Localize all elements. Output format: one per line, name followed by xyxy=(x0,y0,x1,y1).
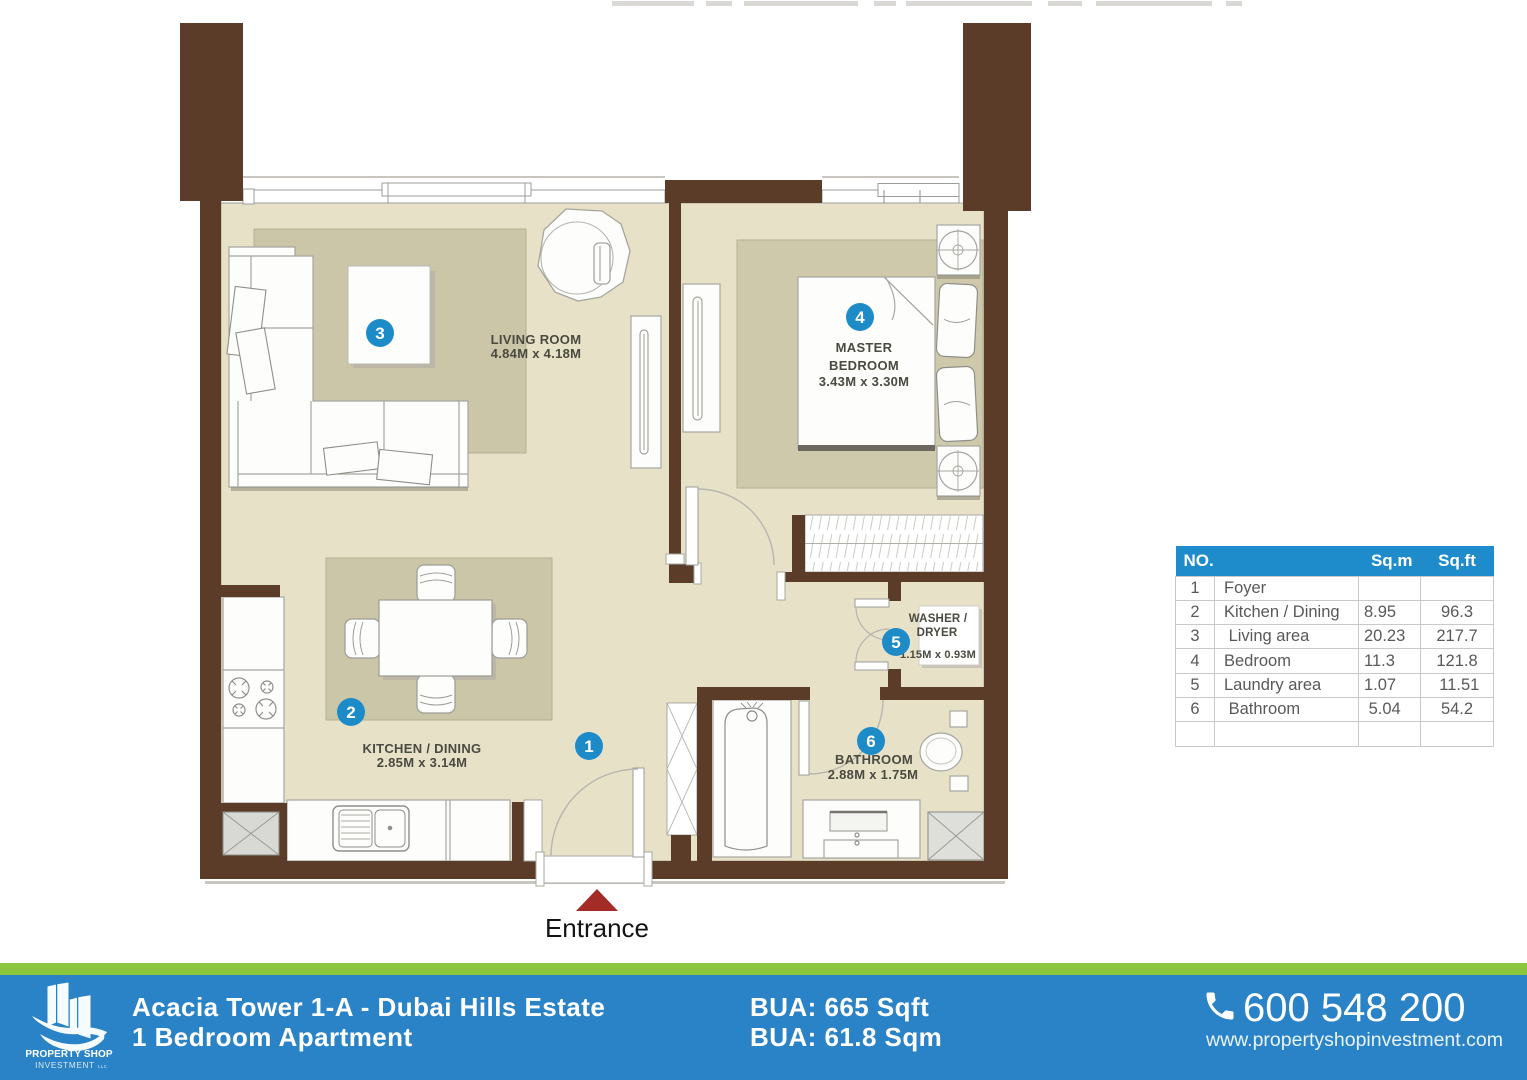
svg-text:5: 5 xyxy=(891,633,900,652)
svg-text:INVESTMENT: INVESTMENT xyxy=(35,1061,95,1070)
svg-text:4.84M x 4.18M: 4.84M x 4.18M xyxy=(491,346,582,361)
svg-text:Entrance: Entrance xyxy=(545,913,649,943)
svg-text:6: 6 xyxy=(866,732,875,751)
svg-text:MASTER: MASTER xyxy=(836,340,893,355)
svg-text:PROPERTY SHOP: PROPERTY SHOP xyxy=(25,1049,112,1060)
svg-text:4: 4 xyxy=(855,308,865,327)
svg-text:2.88M x 1.75M: 2.88M x 1.75M xyxy=(828,767,919,782)
svg-text:BEDROOM: BEDROOM xyxy=(829,358,899,373)
svg-text:DRYER: DRYER xyxy=(917,627,958,639)
svg-text:KITCHEN / DINING: KITCHEN / DINING xyxy=(363,741,482,756)
svg-text:3: 3 xyxy=(375,324,384,343)
svg-text:2: 2 xyxy=(346,703,355,722)
svg-text:WASHER /: WASHER / xyxy=(909,613,968,625)
svg-text:3.43M x 3.30M: 3.43M x 3.30M xyxy=(819,374,910,389)
svg-text:1.15M x 0.93M: 1.15M x 0.93M xyxy=(900,649,976,661)
svg-text:2.85M x 3.14M: 2.85M x 3.14M xyxy=(377,755,468,770)
svg-text:LLC: LLC xyxy=(98,1064,108,1069)
svg-text:1: 1 xyxy=(584,737,593,756)
svg-text:LIVING ROOM: LIVING ROOM xyxy=(491,332,582,347)
